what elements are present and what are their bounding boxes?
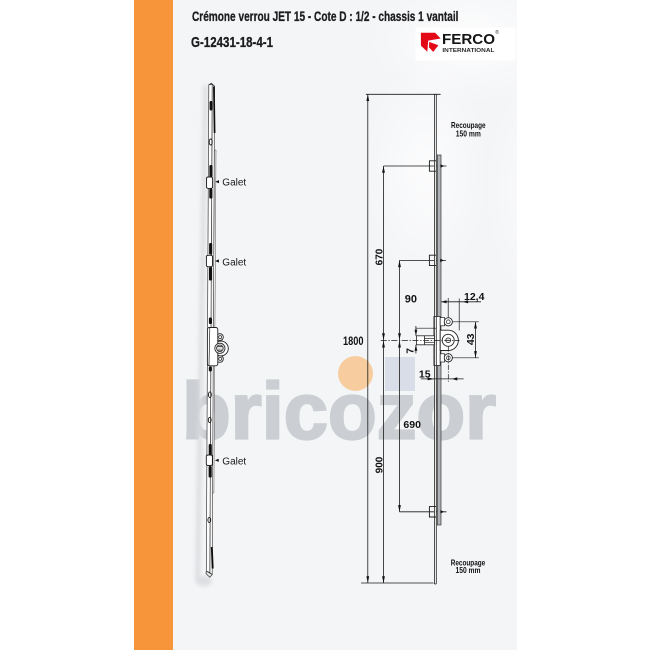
svg-text:1800: 1800 — [343, 336, 364, 348]
svg-text:12,4: 12,4 — [464, 291, 485, 303]
svg-text:Galet: Galet — [222, 177, 246, 188]
svg-text:150 mm: 150 mm — [456, 565, 481, 575]
svg-text:7: 7 — [406, 348, 417, 354]
svg-text:FERCO: FERCO — [442, 32, 495, 48]
svg-text:15: 15 — [419, 368, 431, 380]
svg-text:®: ® — [495, 29, 499, 36]
svg-text:43: 43 — [465, 333, 477, 345]
svg-text:Galet: Galet — [222, 257, 246, 268]
svg-text:INTERNATIONAL: INTERNATIONAL — [442, 48, 495, 54]
svg-text:150 mm: 150 mm — [456, 128, 481, 138]
svg-text:670: 670 — [375, 248, 386, 265]
svg-text:690: 690 — [403, 419, 421, 431]
svg-text:900: 900 — [375, 456, 386, 473]
svg-text:90: 90 — [405, 294, 417, 306]
svg-text:Galet: Galet — [222, 456, 246, 467]
